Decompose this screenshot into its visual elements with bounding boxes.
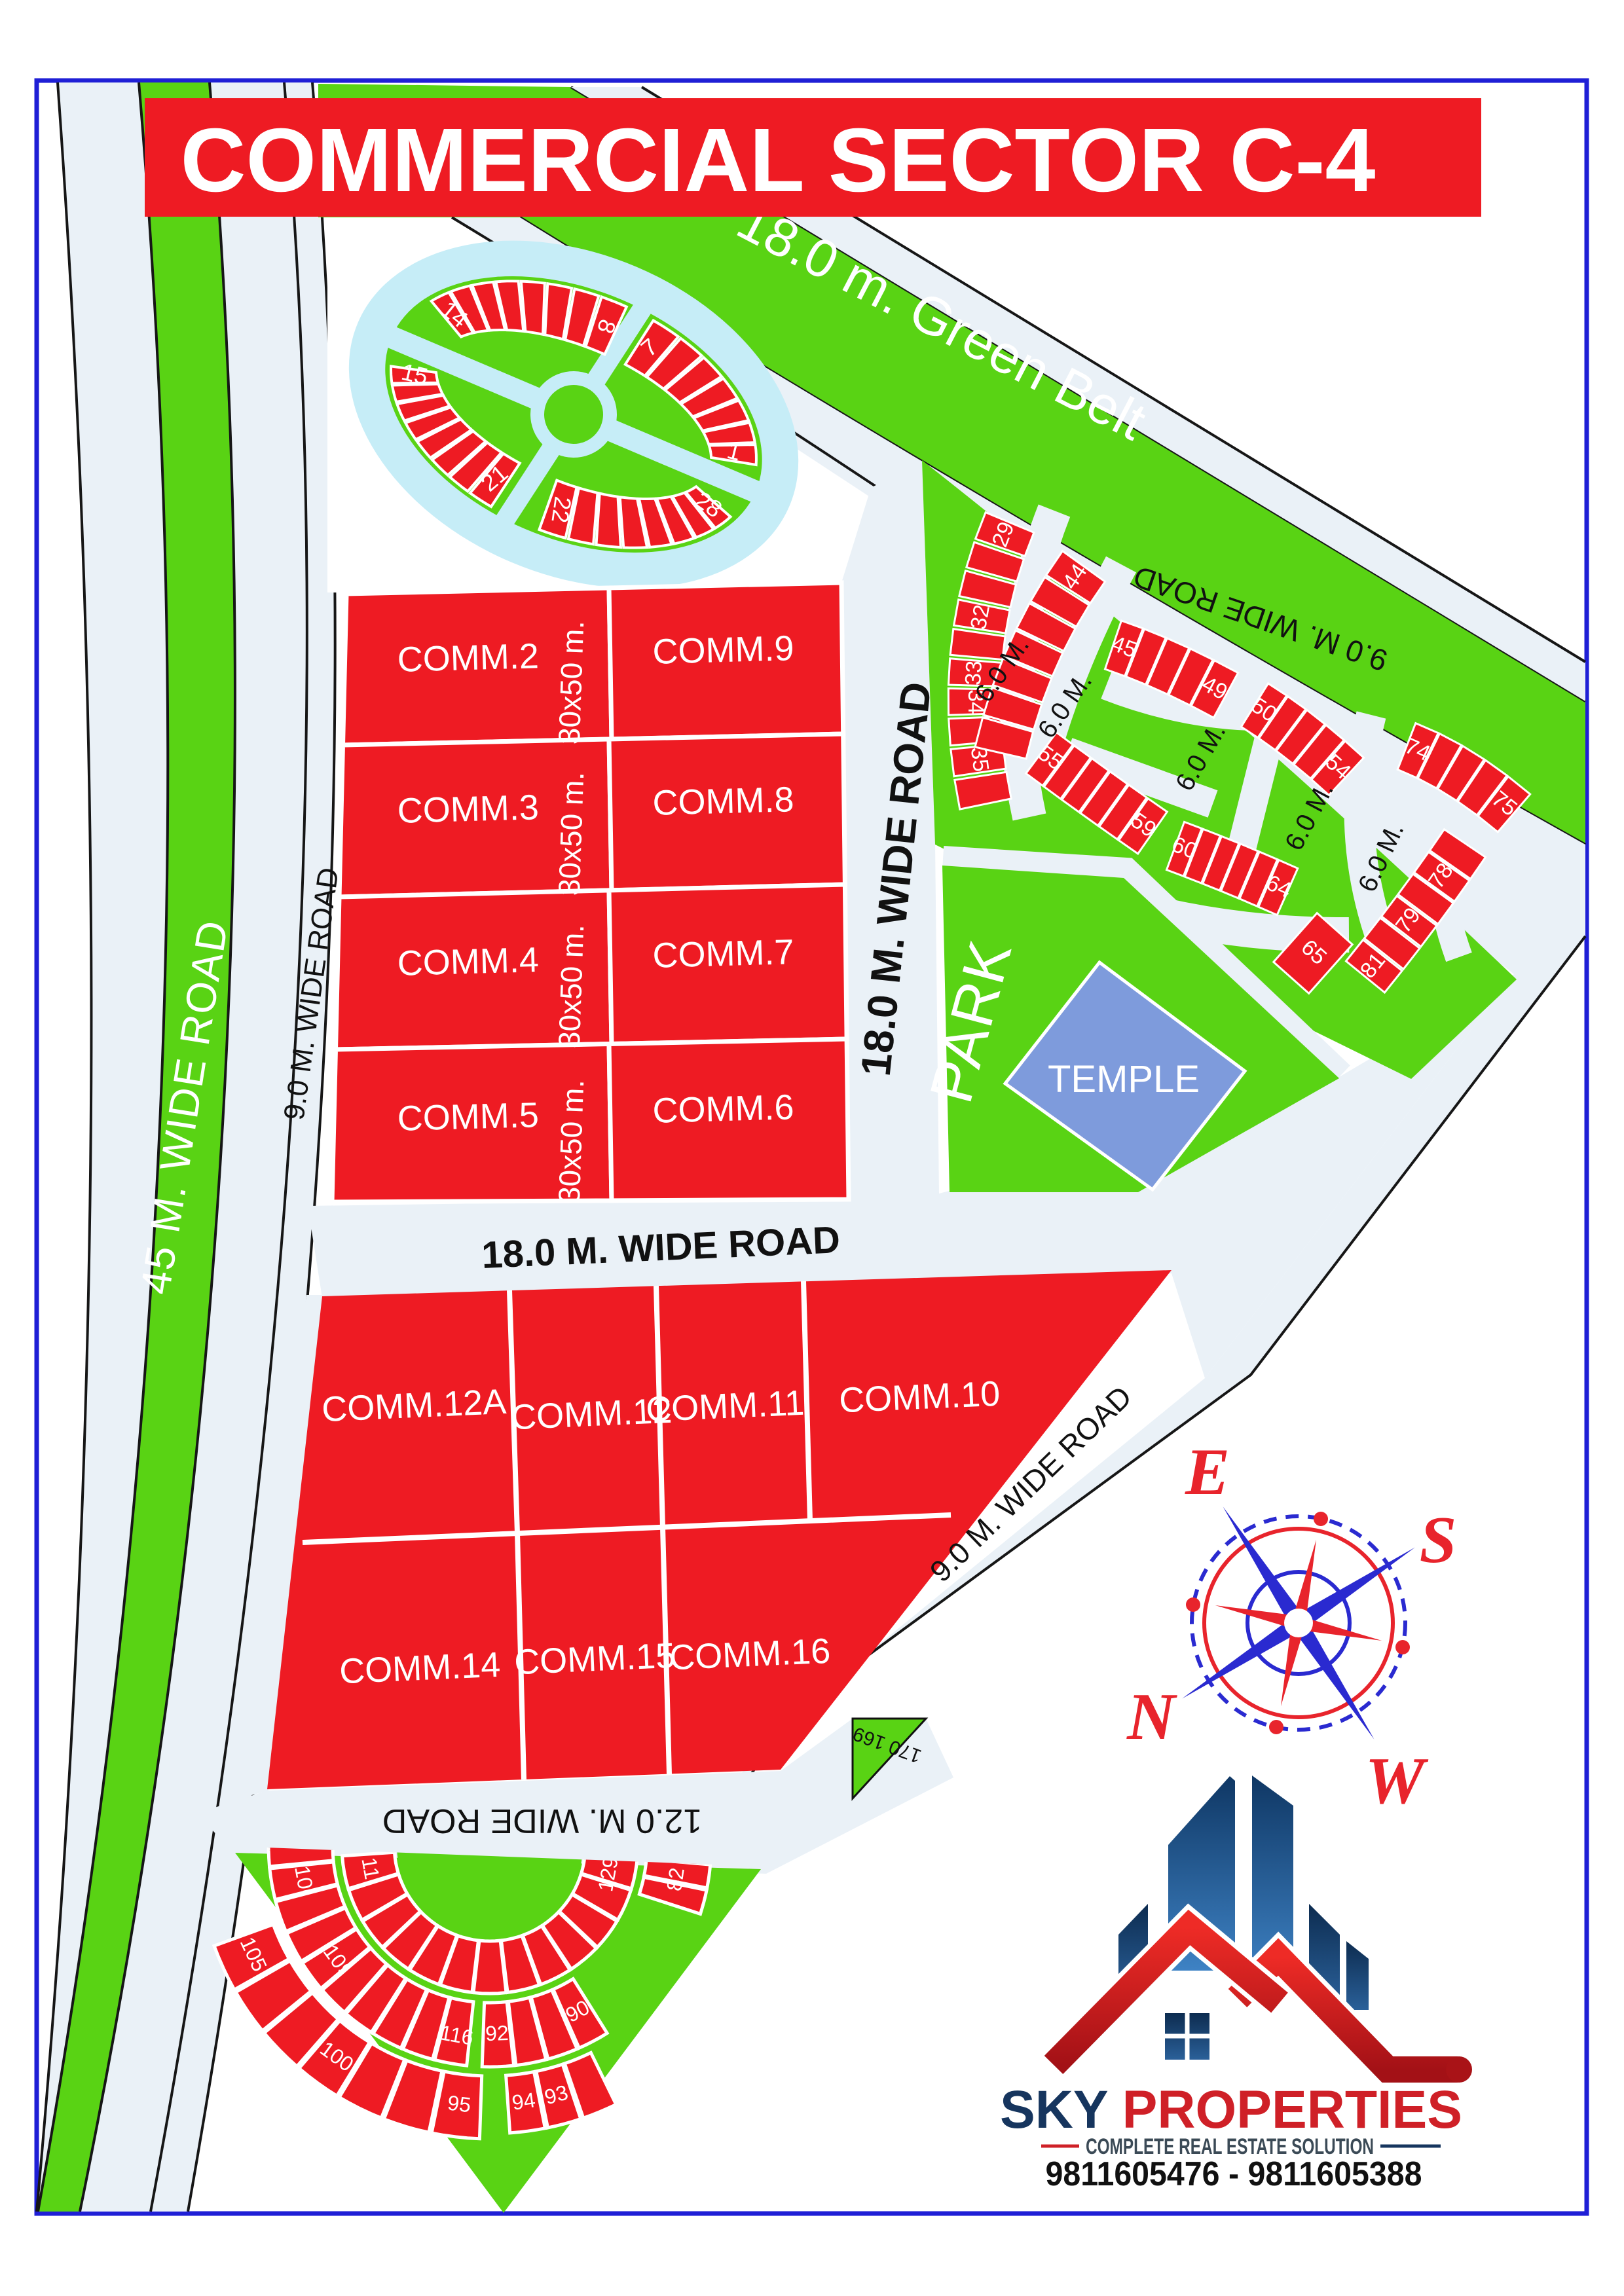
svg-text:9811605476 - 9811605388: 9811605476 - 9811605388 [1046,2155,1422,2193]
svg-text:92: 92 [485,2021,509,2045]
svg-text:S: S [1420,1503,1457,1577]
svg-text:SKY PROPERTIES: SKY PROPERTIES [1000,2080,1462,2140]
svg-text:N: N [1126,1680,1177,1754]
svg-text:COMM.8: COMM.8 [652,780,794,823]
svg-text:COMM.15: COMM.15 [513,1636,676,1683]
svg-text:COMM.6: COMM.6 [652,1087,794,1131]
svg-text:COMM.10: COMM.10 [838,1374,1001,1421]
svg-text:30x50 m.: 30x50 m. [552,924,591,1049]
svg-text:COMM.9: COMM.9 [652,629,794,672]
svg-text:W: W [1365,1744,1429,1818]
svg-text:12.0 M. WIDE ROAD: 12.0 M. WIDE ROAD [382,1802,702,1840]
svg-text:95: 95 [446,2090,472,2117]
svg-text:30x50 m.: 30x50 m. [552,771,591,896]
svg-text:COMM.14: COMM.14 [339,1645,501,1692]
svg-text:30x50 m.: 30x50 m. [552,1079,591,1204]
svg-text:COMM.11: COMM.11 [645,1383,805,1430]
svg-text:E: E [1185,1435,1230,1509]
svg-text:94: 94 [511,2088,537,2115]
svg-text:22: 22 [546,495,576,524]
svg-text:32: 32 [966,603,995,632]
svg-text:COMM.5: COMM.5 [397,1095,539,1139]
svg-text:COMM.4: COMM.4 [397,940,539,983]
svg-text:COMM.2: COMM.2 [397,636,539,680]
svg-text:COMM.12A: COMM.12A [321,1382,507,1429]
svg-text:COMM.7: COMM.7 [652,932,794,975]
svg-text:82: 82 [662,1867,689,1893]
svg-text:COMM.16: COMM.16 [669,1631,831,1678]
svg-text:TEMPLE: TEMPLE [1048,1058,1200,1101]
svg-text:30x50 m.: 30x50 m. [552,620,591,745]
svg-text:COMMERCIAL SECTOR C-4: COMMERCIAL SECTOR C-4 [181,110,1376,211]
svg-text:COMM.3: COMM.3 [397,788,539,831]
